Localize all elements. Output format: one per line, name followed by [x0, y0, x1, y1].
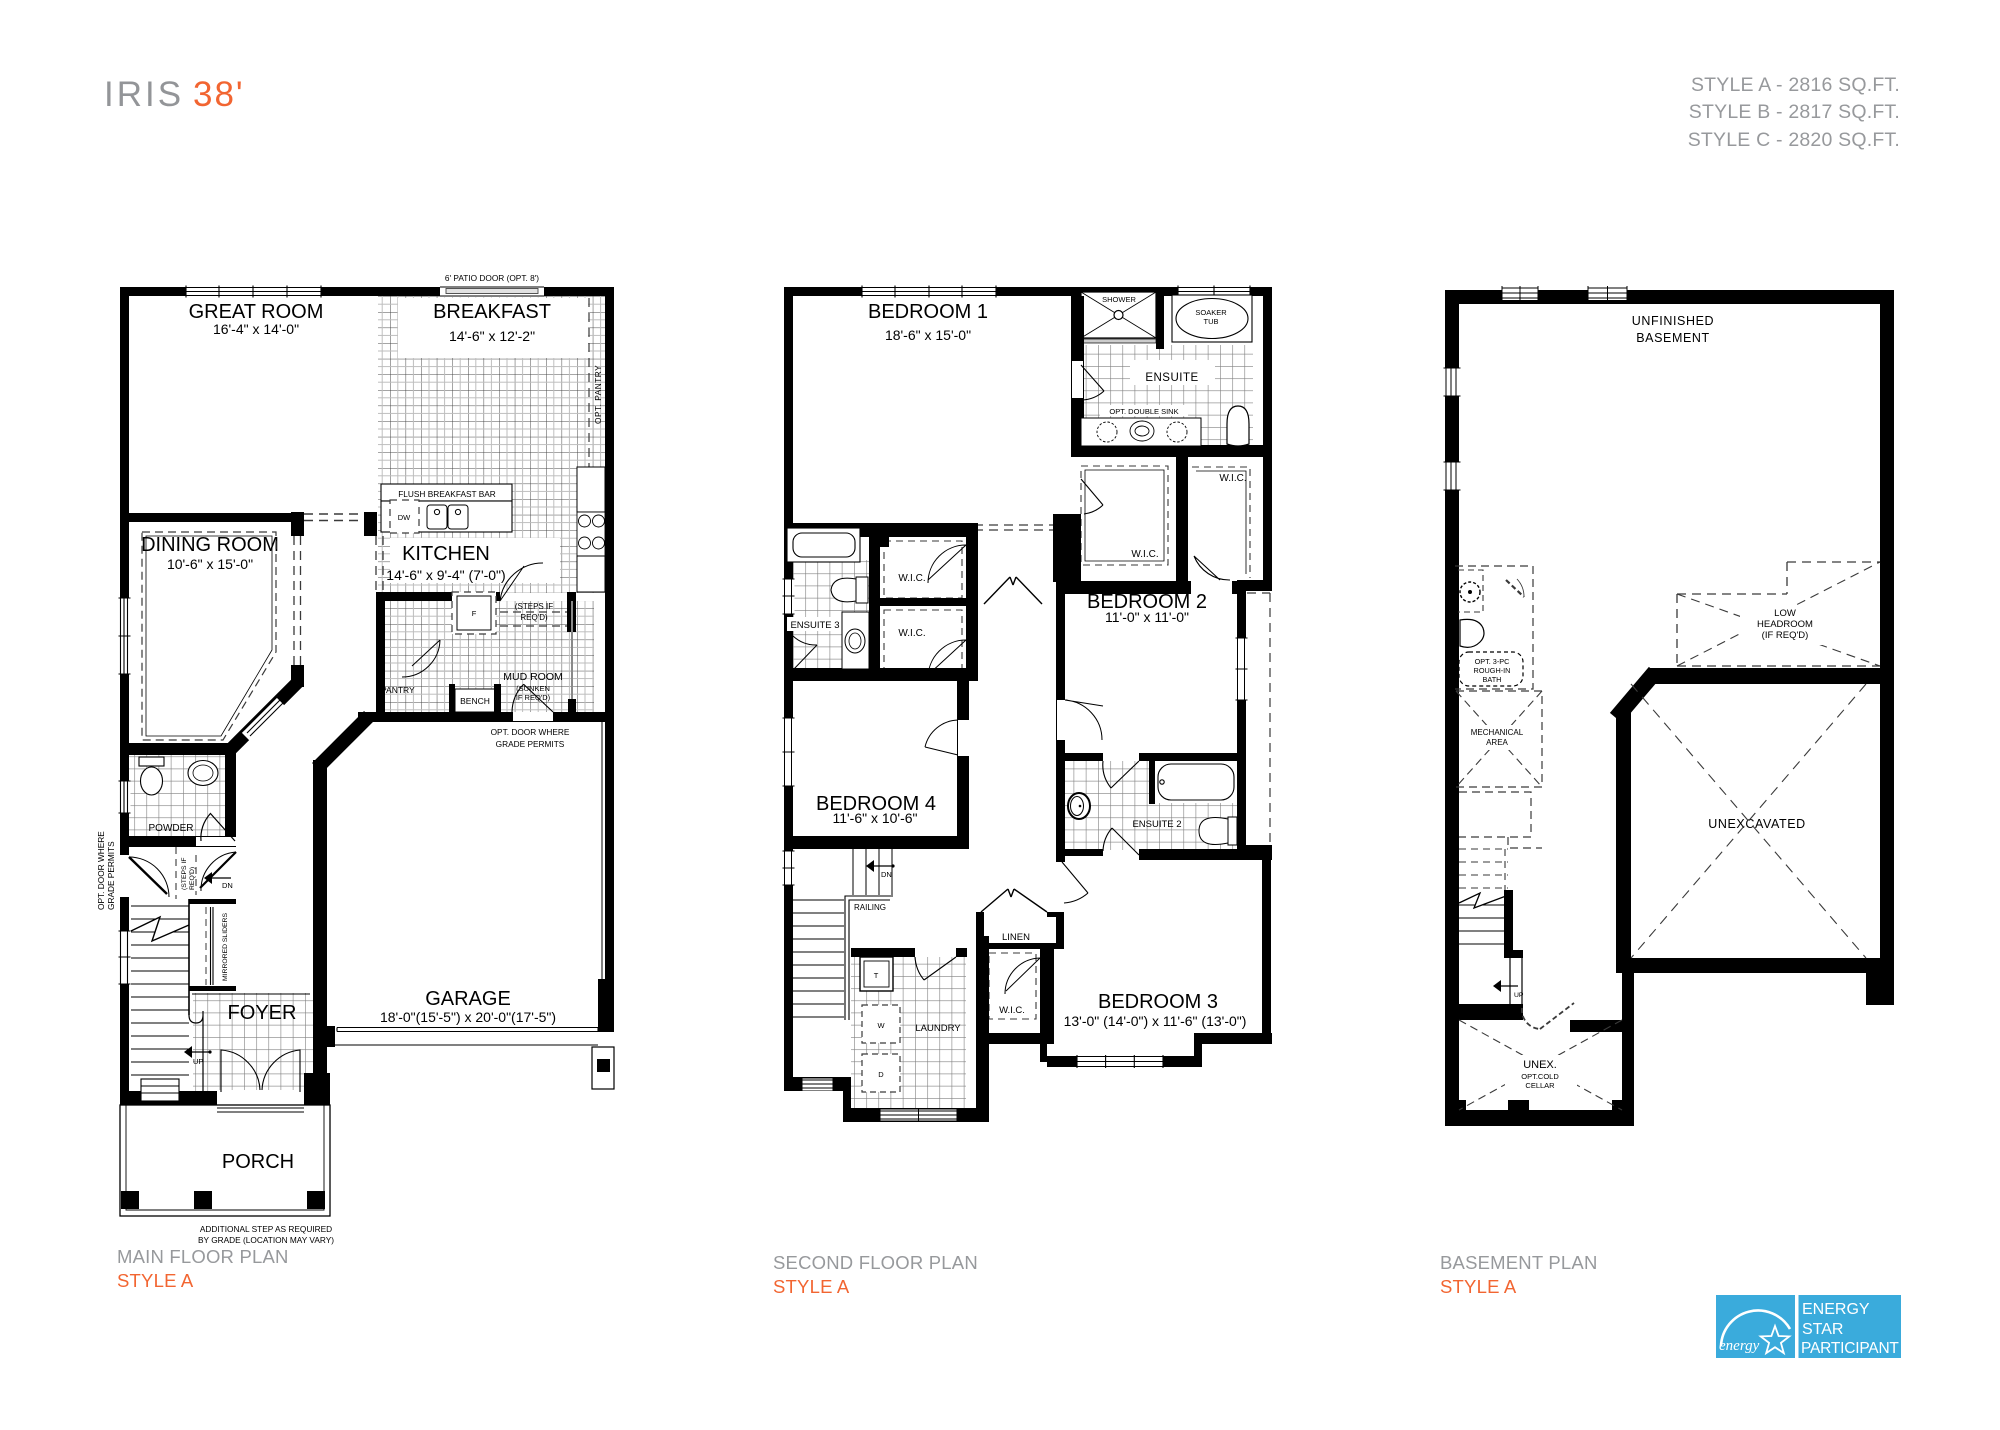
svg-text:KITCHEN: KITCHEN [402, 543, 490, 565]
svg-text:FOYER: FOYER [228, 1002, 297, 1024]
svg-text:IRIS: IRIS [104, 75, 184, 114]
svg-text:16'-4" x 14'-0": 16'-4" x 14'-0" [213, 321, 299, 337]
svg-text:14'-6" x 12'-2": 14'-6" x 12'-2" [449, 328, 535, 344]
svg-text:DN: DN [881, 870, 892, 879]
svg-text:STYLE B - 2817 SQ.FT.: STYLE B - 2817 SQ.FT. [1689, 101, 1900, 123]
svg-text:13'-0" (14'-0") x 11'-6" (13'-: 13'-0" (14'-0") x 11'-6" (13'-0") [1064, 1013, 1247, 1029]
svg-text:UNEXCAVATED: UNEXCAVATED [1708, 817, 1806, 831]
svg-text:IF REQ'D): IF REQ'D) [516, 693, 551, 702]
svg-text:UNFINISHED: UNFINISHED [1632, 314, 1714, 328]
svg-text:HEADROOM: HEADROOM [1757, 619, 1813, 630]
svg-text:W: W [877, 1021, 885, 1030]
svg-text:BY GRADE (LOCATION MAY VARY): BY GRADE (LOCATION MAY VARY) [198, 1235, 334, 1245]
svg-text:PARTICIPANT: PARTICIPANT [1801, 1340, 1899, 1357]
svg-text:ENSUITE: ENSUITE [1145, 372, 1198, 384]
svg-text:energy: energy [1719, 1338, 1760, 1354]
svg-text:PANTRY: PANTRY [381, 685, 415, 695]
svg-text:BREAKFAST: BREAKFAST [433, 301, 551, 323]
svg-text:14'-6" x 9'-4" (7'-0"): 14'-6" x 9'-4" (7'-0") [386, 567, 505, 583]
svg-text:ROUGH-IN: ROUGH-IN [1474, 666, 1511, 675]
svg-text:BEDROOM 1: BEDROOM 1 [868, 301, 988, 323]
svg-text:W.I.C.: W.I.C. [999, 1005, 1025, 1016]
svg-text:REQ'D): REQ'D) [189, 867, 196, 890]
svg-text:ENSUITE 3: ENSUITE 3 [790, 620, 839, 631]
svg-text:38': 38' [193, 75, 245, 114]
svg-text:TUB: TUB [1204, 317, 1219, 326]
svg-text:FLUSH BREAKFAST BAR: FLUSH BREAKFAST BAR [398, 489, 496, 499]
svg-text:DINING ROOM: DINING ROOM [141, 534, 279, 556]
svg-text:MIRRORED SLIDERS: MIRRORED SLIDERS [222, 913, 229, 981]
svg-text:6' PATIO DOOR (OPT. 8'): 6' PATIO DOOR (OPT. 8') [445, 273, 539, 283]
svg-text:OPT. PANTRY: OPT. PANTRY [593, 365, 603, 424]
svg-text:BENCH: BENCH [460, 696, 490, 706]
svg-text:F: F [472, 609, 477, 618]
svg-text:GARAGE: GARAGE [425, 988, 511, 1010]
svg-text:W.I.C.: W.I.C. [1219, 473, 1246, 484]
svg-text:11'-6" x 10'-6": 11'-6" x 10'-6" [832, 810, 917, 826]
svg-text:SOAKER: SOAKER [1195, 308, 1227, 317]
svg-text:POWDER: POWDER [149, 823, 194, 834]
svg-text:LINEN: LINEN [1002, 932, 1030, 943]
svg-text:OPT. DOOR WHERE: OPT. DOOR WHERE [491, 727, 570, 737]
svg-text:DW: DW [398, 513, 411, 522]
svg-text:18'-6" x 15'-0": 18'-6" x 15'-0" [885, 327, 971, 343]
svg-text:STYLE C - 2820 SQ.FT.: STYLE C - 2820 SQ.FT. [1688, 129, 1900, 151]
svg-text:DN: DN [222, 881, 233, 890]
svg-text:10'-6" x 15'-0": 10'-6" x 15'-0" [167, 556, 253, 572]
svg-text:18'-0"(15'-5") x 20'-0"(17'-5": 18'-0"(15'-5") x 20'-0"(17'-5") [380, 1009, 556, 1025]
svg-text:AREA: AREA [1486, 738, 1508, 747]
svg-text:(SUNKEN: (SUNKEN [516, 684, 550, 693]
svg-text:T: T [874, 971, 879, 980]
svg-text:W.I.C.: W.I.C. [1131, 549, 1158, 560]
svg-text:OPT. DOUBLE SINK: OPT. DOUBLE SINK [1109, 407, 1178, 416]
svg-text:SHOWER: SHOWER [1102, 295, 1136, 304]
svg-text:BATH: BATH [1483, 675, 1502, 684]
svg-text:(IF REQ'D): (IF REQ'D) [1762, 630, 1809, 641]
svg-text:RAILING: RAILING [854, 903, 886, 912]
svg-text:ADDITIONAL STEP AS REQUIRED: ADDITIONAL STEP AS REQUIRED [200, 1224, 332, 1234]
svg-text:LOW: LOW [1774, 608, 1796, 619]
svg-text:OPT. DOOR WHERE: OPT. DOOR WHERE [96, 831, 106, 910]
svg-text:(STEPS IF: (STEPS IF [181, 858, 188, 890]
svg-text:STYLE A: STYLE A [1440, 1276, 1517, 1297]
svg-text:REQ'D): REQ'D) [520, 613, 548, 622]
svg-text:ENERGY: ENERGY [1802, 1301, 1870, 1318]
svg-text:W.I.C.: W.I.C. [898, 573, 925, 584]
svg-text:SECOND FLOOR PLAN: SECOND FLOOR PLAN [773, 1252, 978, 1273]
svg-text:11'-0" x 11'-0": 11'-0" x 11'-0" [1105, 609, 1189, 625]
svg-text:STYLE A: STYLE A [117, 1270, 194, 1291]
svg-text:BASEMENT PLAN: BASEMENT PLAN [1440, 1252, 1598, 1273]
svg-text:OPT.COLD: OPT.COLD [1521, 1072, 1559, 1081]
svg-text:GRADE PERMITS: GRADE PERMITS [496, 739, 565, 749]
svg-text:(STEPS IF: (STEPS IF [515, 602, 553, 611]
svg-text:GREAT ROOM: GREAT ROOM [189, 301, 324, 323]
svg-text:BASEMENT: BASEMENT [1636, 331, 1710, 345]
svg-text:BEDROOM 3: BEDROOM 3 [1098, 991, 1218, 1013]
svg-text:STAR: STAR [1802, 1321, 1843, 1338]
svg-text:D: D [878, 1070, 884, 1079]
svg-text:OPT. 3-PC: OPT. 3-PC [1475, 657, 1510, 666]
svg-text:MECHANICAL: MECHANICAL [1471, 728, 1524, 737]
svg-text:CELLAR: CELLAR [1525, 1081, 1555, 1090]
svg-text:MAIN FLOOR PLAN: MAIN FLOOR PLAN [117, 1246, 289, 1267]
svg-text:UP: UP [193, 1057, 203, 1066]
svg-text:UP: UP [1514, 992, 1524, 999]
svg-text:GRADE PERMITS: GRADE PERMITS [106, 841, 116, 910]
svg-text:LAUNDRY: LAUNDRY [915, 1023, 961, 1034]
svg-text:STYLE A - 2816 SQ.FT.: STYLE A - 2816 SQ.FT. [1691, 74, 1900, 96]
svg-text:W.I.C.: W.I.C. [898, 628, 925, 639]
svg-text:STYLE A: STYLE A [773, 1276, 850, 1297]
svg-text:ENSUITE 2: ENSUITE 2 [1132, 819, 1181, 830]
svg-text:UNEX.: UNEX. [1523, 1059, 1557, 1071]
svg-text:MUD ROOM: MUD ROOM [503, 671, 563, 683]
svg-text:PORCH: PORCH [222, 1151, 294, 1173]
